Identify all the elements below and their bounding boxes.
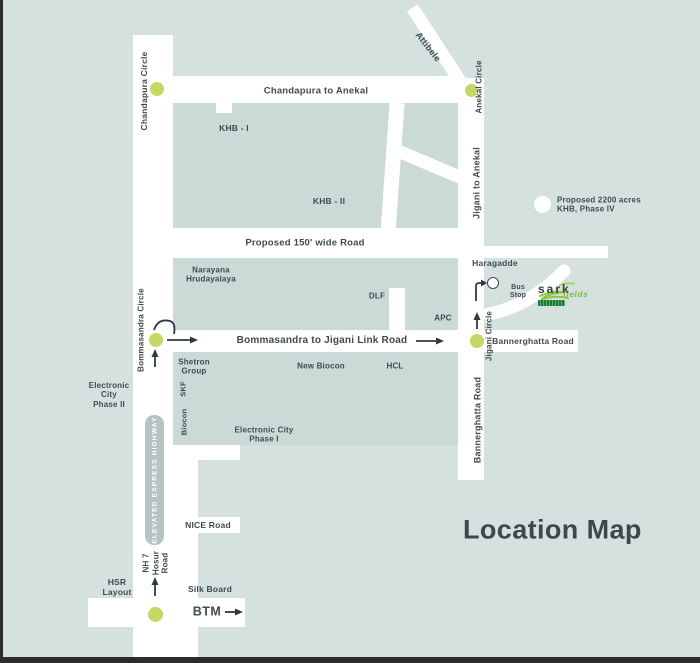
junction-dot-jigani: [470, 334, 484, 348]
label-khb-phase4: Proposed 2200 acres KHB, Phase IV: [557, 196, 641, 215]
label-btm: BTM: [193, 605, 222, 620]
label-new-biocon: New Biocon: [297, 361, 345, 370]
label-nice-road: NICE Road: [185, 520, 231, 530]
label-bus-stop: Bus Stop: [510, 284, 526, 301]
label-apc: APC: [434, 313, 452, 322]
label-skf: SKF: [180, 381, 189, 397]
junction-dot-bommasandra: [149, 333, 163, 347]
label-hcl: HCL: [386, 361, 403, 370]
road-khb1-stub: [216, 103, 232, 113]
elevated-express-highway-band: ELEVATED EXPRESS HIGHWAY: [145, 415, 164, 545]
junction-dot-silkboard: [148, 607, 163, 622]
page-edge-left: [0, 0, 3, 663]
road-dlf-stub: [389, 288, 405, 332]
elevated-express-highway-label: ELEVATED EXPRESS HIGHWAY: [151, 416, 158, 543]
label-hsr-layout: HSR Layout: [102, 577, 131, 597]
label-biocon: Biocon: [181, 409, 190, 436]
label-dlf: DLF: [369, 291, 385, 300]
page-edge-bottom: [0, 657, 700, 663]
road-ec-phase1: [172, 445, 240, 460]
junction-dot-chandapura: [150, 82, 164, 96]
label-bannerghatta-road-v: Bannerghatta Road: [473, 377, 484, 463]
label-silk-board: Silk Board: [188, 584, 232, 594]
label-chandapura-to-anekal: Chandapura to Anekal: [264, 85, 368, 96]
bus-stop-circle-icon: [487, 277, 499, 289]
location-map: ELEVATED EXPRESS HIGHWAY Chandapura Circ…: [0, 0, 700, 663]
label-haragadde: Haragadde: [472, 258, 518, 268]
label-shetron-group: Shetron Group: [178, 358, 210, 377]
sark-logo-tagline-bar: [538, 300, 565, 306]
label-jigani-to-anekal: Jigani to Anekal: [472, 147, 483, 219]
label-electronic-city-phase2: Electronic City Phase II: [89, 381, 130, 409]
label-narayana-hrudayalaya: Narayana Hrudayalaya: [186, 266, 236, 285]
label-bannerghatta-road-h: Bannerghatta Road: [492, 336, 574, 346]
label-bommasandra-circle: Bommasandra Circle: [136, 288, 145, 372]
label-anekal-circle: Anekal Circle: [474, 60, 483, 113]
label-khb1: KHB - I: [219, 123, 249, 133]
label-chandapura-circle: Chandapura Circle: [139, 52, 149, 131]
sark-logo-fields-text: fields: [563, 289, 588, 299]
page-title: Location Map: [463, 515, 642, 546]
label-proposed-150-road: Proposed 150' wide Road: [245, 237, 364, 248]
khb-phase4-dot: [534, 196, 551, 213]
road-silkboard-btm: [88, 598, 245, 627]
label-electronic-city-phase1: Electronic City Phase I: [234, 426, 293, 445]
label-khb2: KHB - II: [313, 196, 345, 206]
label-bommasandra-jigani-link-road: Bommasandra to Jigani Link Road: [237, 335, 408, 347]
label-nh7-hosur-road: NH 7 Hosur Road: [142, 551, 171, 575]
